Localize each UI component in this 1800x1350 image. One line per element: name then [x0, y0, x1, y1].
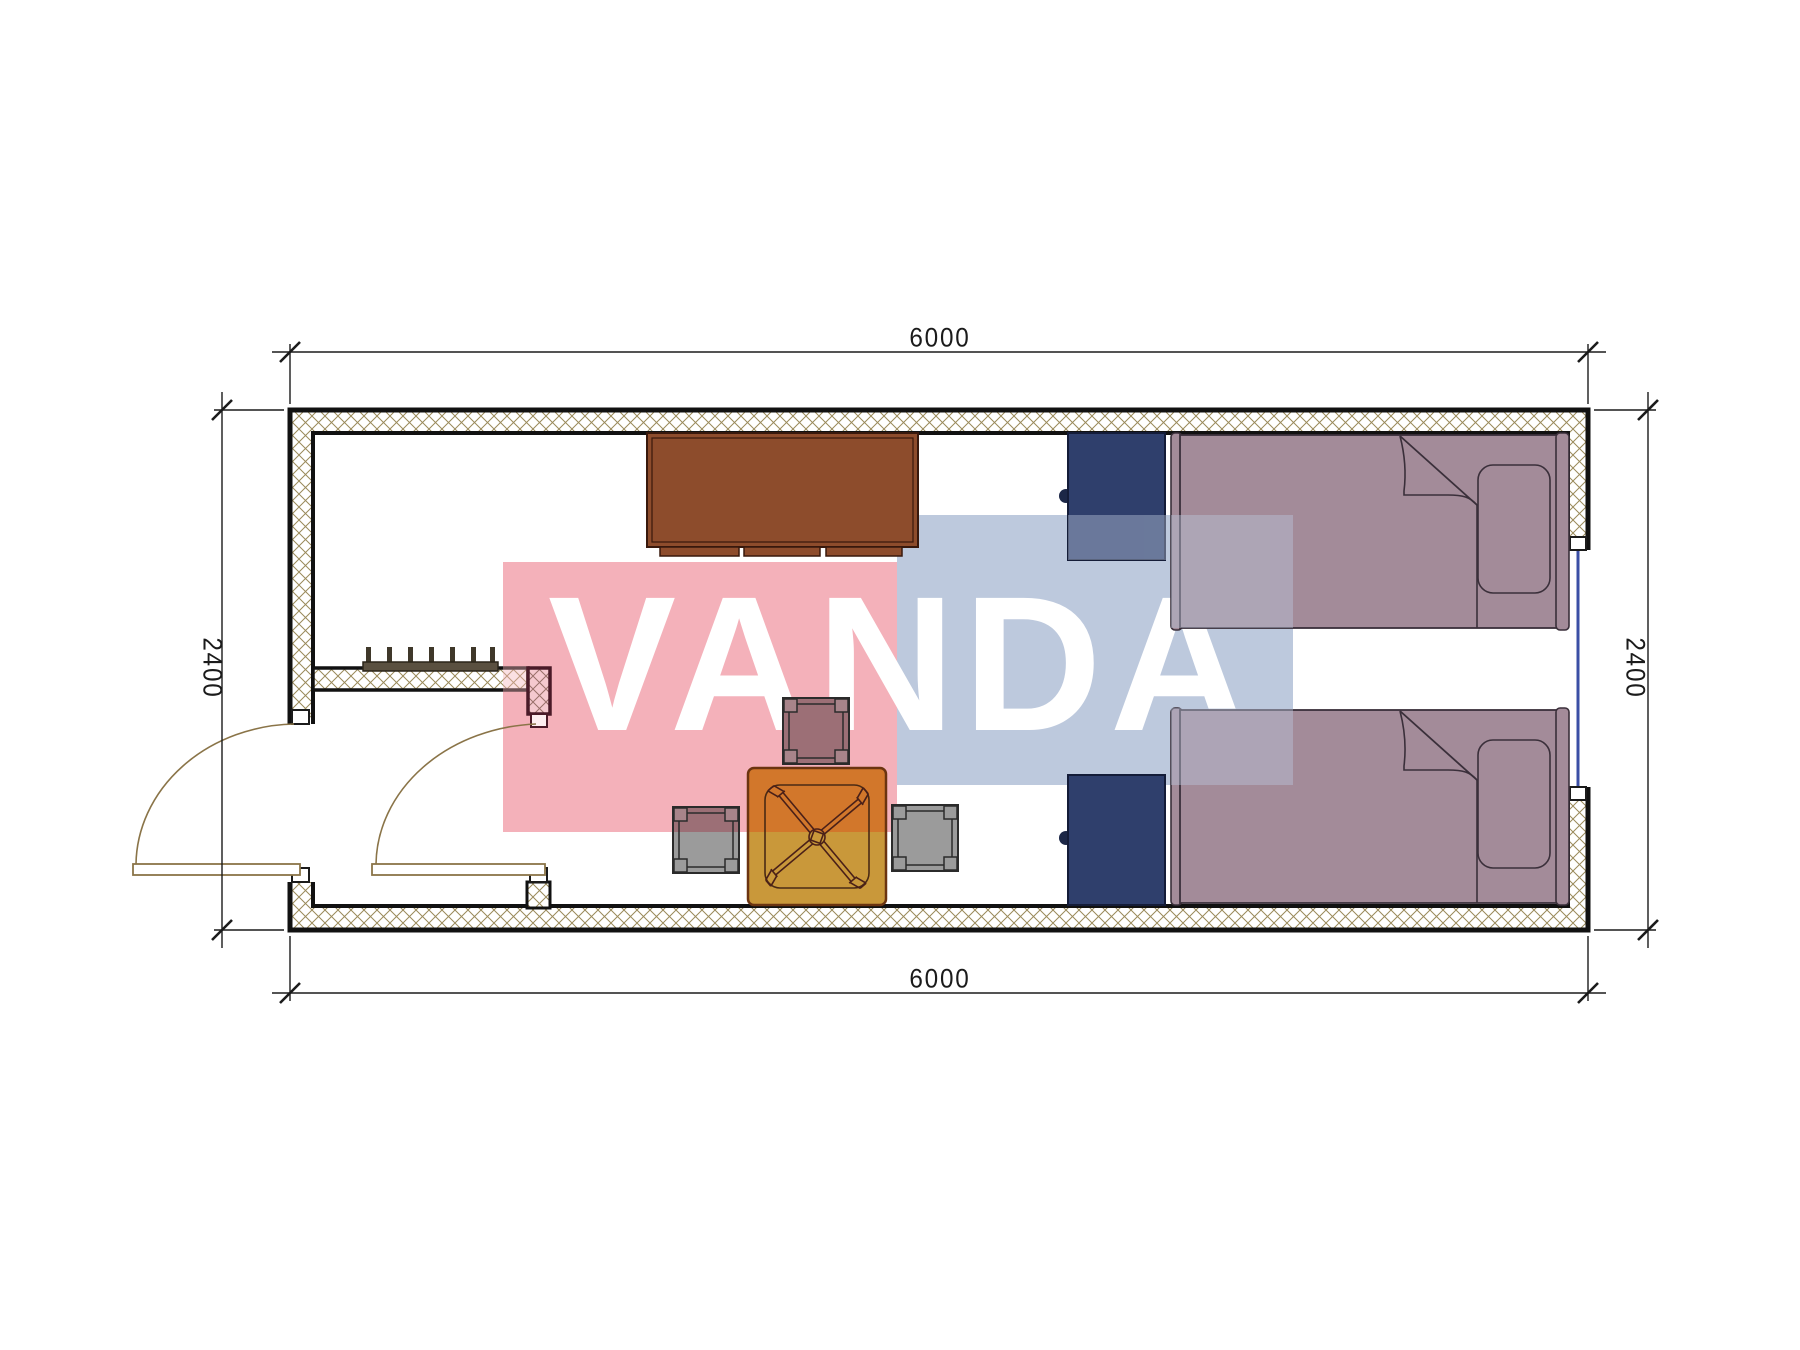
watermark-tint-overlays: [1068, 515, 1293, 785]
window-jamb: [1570, 787, 1586, 800]
table: [748, 768, 886, 905]
dimension-label-right: 2400: [1620, 637, 1651, 698]
dimension-label-top: 6000: [909, 323, 970, 354]
door-jamb: [292, 710, 309, 724]
nightstand-bottom: [1059, 775, 1165, 905]
entry-opening: [285, 724, 318, 882]
stool-top: [783, 698, 849, 764]
floor-plan-page: VANDA: [0, 0, 1800, 1350]
window-jamb: [1570, 537, 1586, 550]
radiator: [363, 647, 498, 671]
dimension-label-left: 2400: [197, 637, 228, 698]
door-left: [133, 724, 300, 875]
stool-right: [892, 805, 958, 871]
dimension-label-bottom: 6000: [909, 964, 970, 995]
cabinet: [647, 433, 918, 556]
door-interior: [372, 724, 545, 875]
stool-left: [673, 807, 739, 873]
floor-plan-drawing: [0, 0, 1800, 1350]
